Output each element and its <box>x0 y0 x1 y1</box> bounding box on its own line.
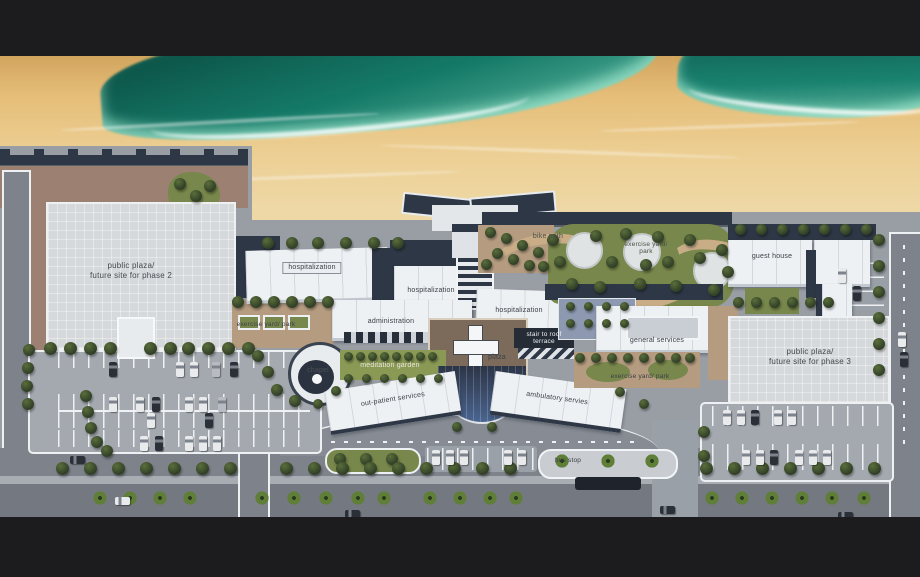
tree <box>485 227 496 238</box>
tree <box>286 237 298 249</box>
label-administration: administration <box>368 318 414 326</box>
car <box>751 410 759 425</box>
car <box>109 397 117 412</box>
tree <box>101 445 113 457</box>
tree <box>698 426 710 438</box>
tree <box>538 261 549 272</box>
palm-tree <box>254 490 270 506</box>
tree <box>639 399 649 409</box>
car <box>212 362 220 377</box>
tree <box>728 462 741 475</box>
car <box>460 450 468 465</box>
tree <box>82 406 94 418</box>
car <box>853 286 861 301</box>
tree <box>289 395 301 407</box>
tree <box>634 278 646 290</box>
tree <box>392 352 401 361</box>
label-hospitalization-2: hospitalization <box>407 287 454 295</box>
palm-tree <box>734 490 750 506</box>
tree <box>508 254 519 265</box>
tree <box>140 462 153 475</box>
car <box>838 268 846 283</box>
tree <box>640 259 652 271</box>
tree <box>392 237 404 249</box>
tree <box>364 462 377 475</box>
tree <box>787 297 798 308</box>
tree <box>434 374 443 383</box>
tree <box>584 319 593 328</box>
car <box>136 397 144 412</box>
tree <box>751 297 762 308</box>
tree <box>262 366 274 378</box>
tree <box>331 386 341 396</box>
palm-tree <box>704 490 720 506</box>
tree <box>606 256 618 268</box>
label-hospitalization-1: hospitalization <box>282 262 341 274</box>
tree <box>584 302 593 311</box>
landscape-decoration <box>0 0 920 577</box>
tree <box>232 296 244 308</box>
car <box>176 362 184 377</box>
tree <box>222 342 235 355</box>
tree <box>85 422 97 434</box>
car <box>218 397 226 412</box>
tree <box>694 252 706 264</box>
car <box>205 413 213 428</box>
tree <box>620 319 629 328</box>
tree <box>362 374 371 383</box>
tree <box>554 256 566 268</box>
tree <box>501 233 512 244</box>
car <box>432 450 440 465</box>
tree <box>84 342 97 355</box>
tree <box>416 374 425 383</box>
tree <box>602 302 611 311</box>
tree <box>380 374 389 383</box>
tree <box>271 384 283 396</box>
car <box>900 352 908 367</box>
tree <box>182 342 195 355</box>
tree <box>840 224 851 235</box>
label-chapel: chapel <box>307 367 329 375</box>
car <box>660 506 675 514</box>
label-public-plaza-phase2: public plaza/ future site for phase 2 <box>66 261 196 281</box>
tree <box>313 399 323 409</box>
tree <box>805 297 816 308</box>
palm-tree <box>482 490 498 506</box>
letterbox-top <box>0 0 920 56</box>
tree <box>308 462 321 475</box>
tree <box>708 284 720 296</box>
palm-tree <box>152 490 168 506</box>
label-bike-path: bike path <box>533 233 563 241</box>
palm-tree <box>286 490 302 506</box>
tree <box>722 266 734 278</box>
tree <box>356 352 365 361</box>
tree <box>868 462 881 475</box>
car <box>737 410 745 425</box>
tree <box>487 422 497 432</box>
palm-tree <box>350 490 366 506</box>
tree <box>404 352 413 361</box>
tree <box>769 297 780 308</box>
label-exercise-yard-top: exercise yard/ park <box>624 241 667 255</box>
tree <box>44 342 57 355</box>
tree <box>873 234 885 246</box>
tree <box>620 228 632 240</box>
tree <box>56 462 69 475</box>
tree <box>416 352 425 361</box>
tree <box>615 387 625 397</box>
car <box>898 332 906 347</box>
car <box>446 450 454 465</box>
palm-tree <box>794 490 810 506</box>
tree <box>671 353 681 363</box>
car <box>109 362 117 377</box>
palm-median <box>556 490 613 512</box>
tree <box>368 352 377 361</box>
label-hospitalization-3: hospitalization <box>495 307 542 315</box>
tree <box>286 296 298 308</box>
tree <box>575 353 585 363</box>
car <box>742 450 750 465</box>
campus-scene: public plaza/ future site for phase 2 ho… <box>0 0 920 577</box>
car <box>185 397 193 412</box>
car <box>70 456 85 464</box>
tree <box>823 297 834 308</box>
tree <box>104 342 117 355</box>
tree <box>250 296 262 308</box>
tree <box>452 422 462 432</box>
tree <box>639 353 649 363</box>
tree <box>268 296 280 308</box>
palm-tree <box>92 490 108 506</box>
tree <box>344 374 353 383</box>
label-bus-stop: bus stop <box>555 457 581 465</box>
car <box>199 436 207 451</box>
tree <box>607 353 617 363</box>
car <box>723 410 731 425</box>
tree <box>262 237 274 249</box>
tree <box>602 319 611 328</box>
tree <box>202 342 215 355</box>
tree <box>336 462 349 475</box>
tree <box>23 344 35 356</box>
tree <box>164 342 177 355</box>
car <box>230 362 238 377</box>
car <box>115 497 130 505</box>
label-public-plaza-phase3: public plaza/ future site for phase 3 <box>745 347 875 367</box>
tree <box>777 224 788 235</box>
car <box>199 397 207 412</box>
tree <box>873 312 885 324</box>
car <box>774 410 782 425</box>
palm-tree <box>824 490 840 506</box>
tree <box>662 256 674 268</box>
letterbox-bottom <box>0 517 920 577</box>
tree <box>590 230 602 242</box>
car <box>518 450 526 465</box>
tree <box>566 278 578 290</box>
tree <box>840 462 853 475</box>
label-general-services: general services <box>630 337 684 345</box>
car <box>809 450 817 465</box>
tree <box>735 224 746 235</box>
car <box>152 397 160 412</box>
car <box>788 410 796 425</box>
tree <box>566 319 575 328</box>
tree <box>112 462 125 475</box>
tree <box>861 224 872 235</box>
tree <box>22 398 34 410</box>
label-plaza: plaza <box>488 354 506 362</box>
tree <box>252 350 264 362</box>
palm-tree <box>600 453 616 469</box>
tree <box>392 462 405 475</box>
tree <box>476 462 489 475</box>
tree <box>492 248 503 259</box>
tree <box>524 260 535 271</box>
palm-tree <box>376 490 392 506</box>
tree <box>716 244 728 256</box>
tree <box>591 353 601 363</box>
tree <box>368 237 380 249</box>
car <box>190 362 198 377</box>
tree <box>22 362 34 374</box>
palm-tree <box>422 490 438 506</box>
tree <box>733 297 744 308</box>
tree <box>420 462 433 475</box>
label-guest-house: guest house <box>752 253 792 261</box>
car <box>140 436 148 451</box>
tree <box>655 353 665 363</box>
tree <box>698 450 710 462</box>
tree <box>873 286 885 298</box>
tree <box>174 178 186 190</box>
palm-tree <box>508 490 524 506</box>
tree <box>21 380 33 392</box>
tree <box>280 462 293 475</box>
tree <box>798 224 809 235</box>
palm-tree <box>452 490 468 506</box>
tree <box>873 260 885 272</box>
car <box>770 450 778 465</box>
tree <box>224 462 237 475</box>
palm-tree <box>318 490 334 506</box>
tree <box>196 462 209 475</box>
tree <box>566 302 575 311</box>
tree <box>481 259 492 270</box>
palm-tree <box>856 490 872 506</box>
car <box>185 436 193 451</box>
tree <box>428 352 437 361</box>
tree <box>620 302 629 311</box>
label-stair-to-roof: stair to roof terrace <box>526 331 561 345</box>
label-exercise-yard-west: exercise yard/ park <box>237 321 296 329</box>
tree <box>204 180 216 192</box>
palm-tree <box>764 490 780 506</box>
car <box>213 436 221 451</box>
palm-tree <box>644 453 660 469</box>
tree <box>756 224 767 235</box>
tree <box>700 462 713 475</box>
car <box>147 413 155 428</box>
tree <box>380 352 389 361</box>
tree <box>623 353 633 363</box>
tree <box>517 240 528 251</box>
tree <box>398 374 407 383</box>
tree <box>80 390 92 402</box>
tree <box>304 296 316 308</box>
tree <box>91 436 103 448</box>
car <box>155 436 163 451</box>
tree <box>344 352 353 361</box>
tree <box>819 224 830 235</box>
tree <box>190 190 202 202</box>
label-exercise-yard-east: exercise yard/ park <box>611 373 670 381</box>
tree <box>533 247 544 258</box>
tree <box>168 462 181 475</box>
label-meditation-garden: meditation garden <box>360 362 419 370</box>
tree <box>312 237 324 249</box>
tree <box>670 280 682 292</box>
car <box>504 450 512 465</box>
car <box>795 450 803 465</box>
site-plan-rendering: public plaza/ future site for phase 2 ho… <box>0 0 920 577</box>
tree <box>84 462 97 475</box>
tree <box>340 237 352 249</box>
car <box>823 450 831 465</box>
tree <box>685 353 695 363</box>
tree <box>144 342 157 355</box>
car <box>756 450 764 465</box>
palm-tree <box>182 490 198 506</box>
tree <box>64 342 77 355</box>
tree <box>322 296 334 308</box>
tree <box>684 234 696 246</box>
tree <box>594 281 606 293</box>
